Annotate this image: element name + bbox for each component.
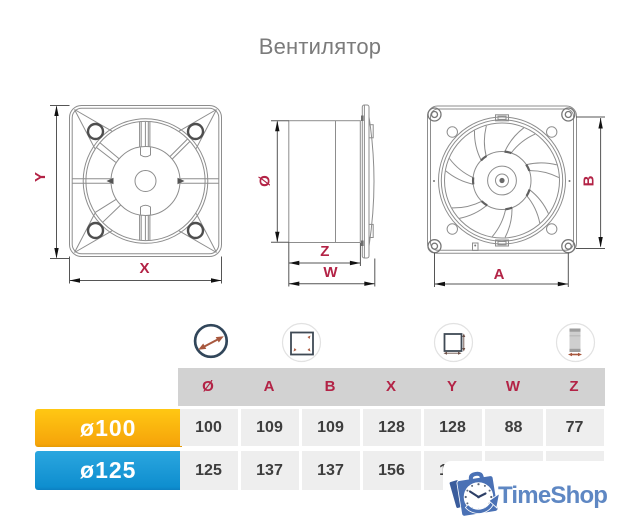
svg-text:A: A xyxy=(494,266,505,283)
svg-text:X: X xyxy=(139,260,149,277)
svg-text:B: B xyxy=(581,175,598,186)
svg-text:Z: Z xyxy=(320,243,329,260)
svg-text:Y: Y xyxy=(32,172,49,182)
svg-text:Ø: Ø xyxy=(257,175,274,187)
svg-text:W: W xyxy=(323,264,338,281)
